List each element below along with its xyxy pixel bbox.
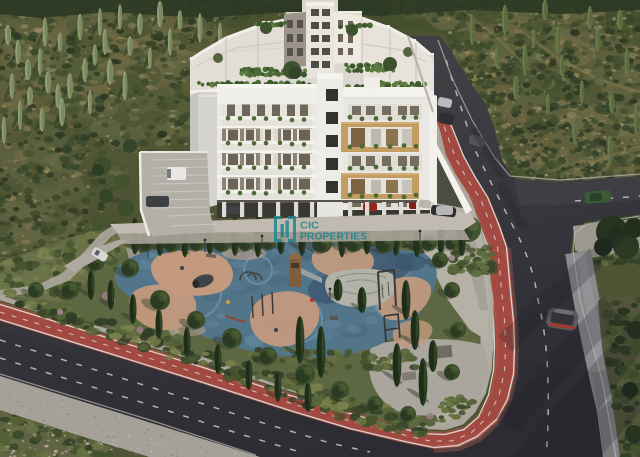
svg-text:PROPERTIES: PROPERTIES	[300, 232, 367, 243]
svg-text:CIC: CIC	[300, 221, 319, 232]
